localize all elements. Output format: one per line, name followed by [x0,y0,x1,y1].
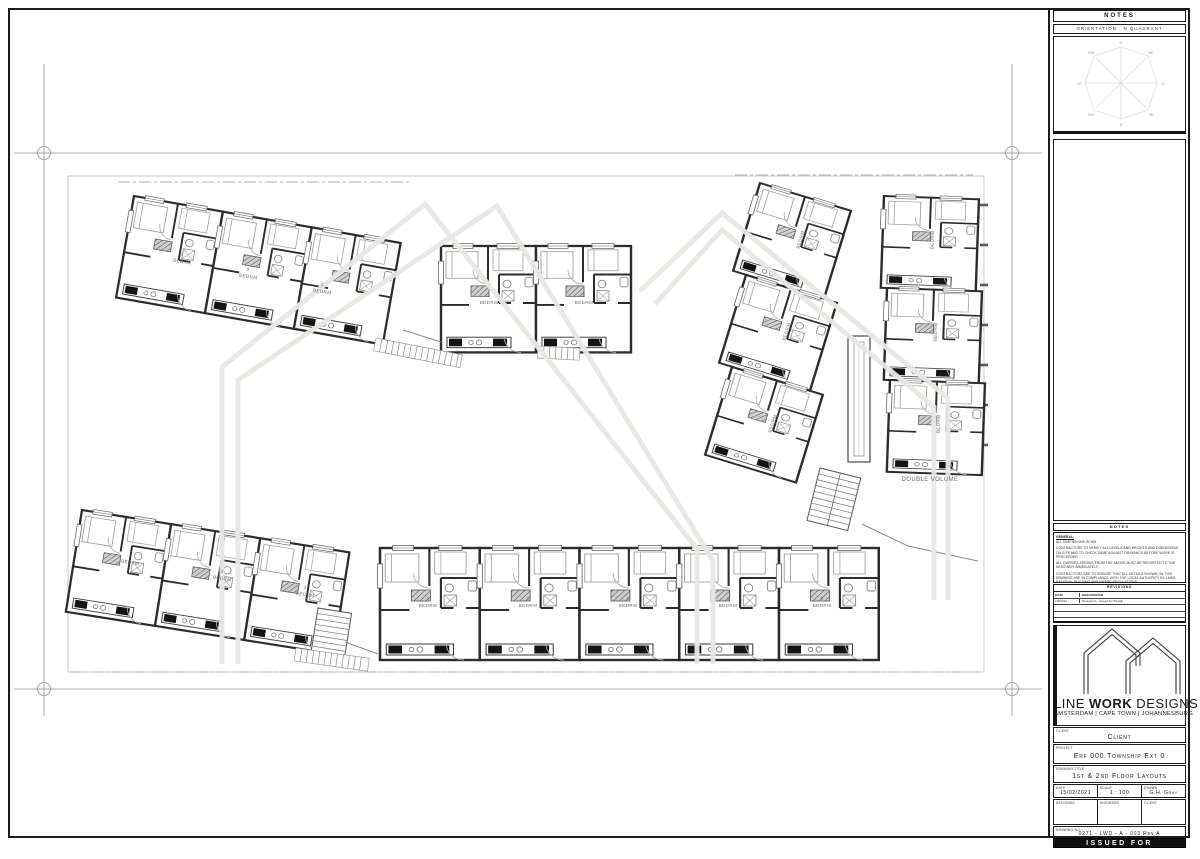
note-item: CONTRACTORS ARE TO ENSURE THAT ALL DETAI… [1056,572,1183,585]
note-item: ALL QUERIES ARISING FROM THE ABOVE MUST … [1056,561,1183,570]
revisions-col-desc: DESCRIPTION [1080,593,1185,597]
room-label: BEDRM [719,603,738,608]
spare-panel [1053,139,1186,521]
room-label: BEDRM [813,603,832,608]
room-label: DOUBLE VOLUME [902,477,959,483]
revision-date: 15/02/21 [1054,599,1080,603]
project-label: PROJECT [1056,746,1073,750]
drawing-no-label: DRAWING NO. [1056,828,1081,832]
room-label: BEDRM [419,603,438,608]
room-label: BEDRM [480,300,499,305]
compass-e: E [1162,81,1165,86]
scale-value: 1 : 100 [1098,790,1141,796]
notes-section-bar: NOTES [1053,523,1186,531]
revision-row-empty [1054,605,1185,612]
revisions-header: REVISIONS [1054,585,1185,592]
drawn-cell: DRAWN G.H. Gray [1142,785,1185,797]
brand-name: LINE WORK DESIGNS [1054,696,1185,711]
revisions-column-row: DATE DESCRIPTION [1054,592,1185,599]
room-label: BEDRM [930,231,936,250]
project-value: Erf 000 Township Ext 0 [1054,753,1185,760]
room-label: 1 [427,596,430,601]
brand-name-work: WORK [1089,696,1132,711]
drawing-title-label: DRAWING TITLE [1056,767,1085,771]
room-label: 3 [627,596,630,601]
brand-name-line: LINE [1054,696,1089,711]
floor-plan-drawing: 1BEDRM2BEDRM3BEDRM1BEDRM2BEDRMBEDRMBEDRM… [0,0,1048,847]
orientation-text: ORIENTATION : N QUADRANT [1054,25,1185,33]
compass-nw: NW [1088,50,1095,55]
compass-s: S [1120,122,1123,127]
notes-section-text: NOTES [1054,524,1185,531]
notes-header-text: NOTES [1054,11,1185,21]
room-label: 4 [727,596,730,601]
client-sign-label: CLIENT [1144,801,1157,805]
block-top-left [114,193,401,344]
client-box: CLIENT Client [1053,727,1186,743]
date-scale-drawn-row: DATE 15/02/2021 SCALE 1 : 100 DRAWN G.H.… [1053,784,1186,798]
room-label: 1 [488,293,491,298]
drawn-value: G.H. Gray [1142,790,1185,796]
scale-cell: SCALE 1 : 100 [1098,785,1142,797]
compass-ne: NE [1148,50,1154,55]
note-item: CONTRACTORS TO VERIFY ALL LEVELS AND HEI… [1056,546,1183,559]
drawing-title-box: DRAWING TITLE 1st & 2nd Floor Layouts [1053,765,1186,783]
compass-box: N NE E SE S SW W NW [1053,36,1186,134]
room-label: BEDRM [933,323,939,342]
client-label: CLIENT [1056,729,1069,733]
revision-description: Revision A - Issued for Design [1080,599,1185,603]
revision-row-empty [1054,612,1185,619]
revisions-col-date: DATE [1054,593,1080,597]
revision-row: 15/02/21 Revision A - Issued for Design [1054,599,1185,606]
compass-se: SE [1148,112,1154,117]
room-label: 2 [583,293,586,298]
designed-label: DESIGNED [1056,801,1075,805]
note-item: ALL DIMENSIONS IN MM. [1056,540,1183,544]
logo-box: LINE WORK DESIGNS AMSTERDAM | CAPE TOWN … [1053,625,1186,726]
room-label: 2 [527,596,530,601]
room-label: BEDRM [936,415,942,434]
copyright-strip [1053,625,1057,726]
project-box: PROJECT Erf 000 Township Ext 0 [1053,744,1186,764]
engineer-label: ENGINEER [1100,801,1119,805]
date-value: 15/02/2021 [1054,790,1097,796]
title-block: NOTES ORIENTATION : N QUADRANT N NE E SE… [1048,8,1190,838]
room-label: BEDRM [619,603,638,608]
date-cell: DATE 15/02/2021 [1054,785,1098,797]
room-label: BEDRM [519,603,538,608]
compass-rose: N NE E SE S SW W NW [1054,37,1188,130]
general-label: GENERAL: [1056,535,1183,539]
room-label: BEDRM [575,300,594,305]
engineer-cell: ENGINEER [1098,800,1142,824]
general-notes-box: GENERAL: ALL DIMENSIONS IN MM. CONTRACTO… [1053,532,1186,583]
drawing-no-box: DRAWING NO. 0271 - LWD - A - 003 Rev A [1053,826,1186,837]
block-right-a [703,180,852,482]
client-sign-cell: CLIENT [1142,800,1185,824]
orientation-bar: ORIENTATION : N QUADRANT [1053,24,1186,34]
signoff-row: DESIGNED ENGINEER CLIENT [1053,799,1186,825]
designed-cell: DESIGNED [1054,800,1098,824]
compass-w: W [1077,81,1081,86]
compass-sw: SW [1088,112,1095,117]
brand-cities: AMSTERDAM | CAPE TOWN | JOHANNESBURG [1054,711,1185,717]
revisions-box: REVISIONS DATE DESCRIPTION 15/02/21 Revi… [1053,584,1186,623]
block-bottom-left [64,507,350,654]
drawing-title-value: 1st & 2nd Floor Layouts [1054,773,1185,780]
room-label: 5 [821,596,824,601]
brand-name-designs: DESIGNS [1132,696,1198,711]
client-value: Client [1054,734,1185,741]
logo-houses-icon [1054,626,1188,696]
notes-header-bar: NOTES [1053,10,1186,22]
drawing-sheet: 1BEDRM2BEDRM3BEDRM1BEDRM2BEDRMBEDRMBEDRM… [0,0,1200,847]
compass-n: N [1120,40,1123,45]
